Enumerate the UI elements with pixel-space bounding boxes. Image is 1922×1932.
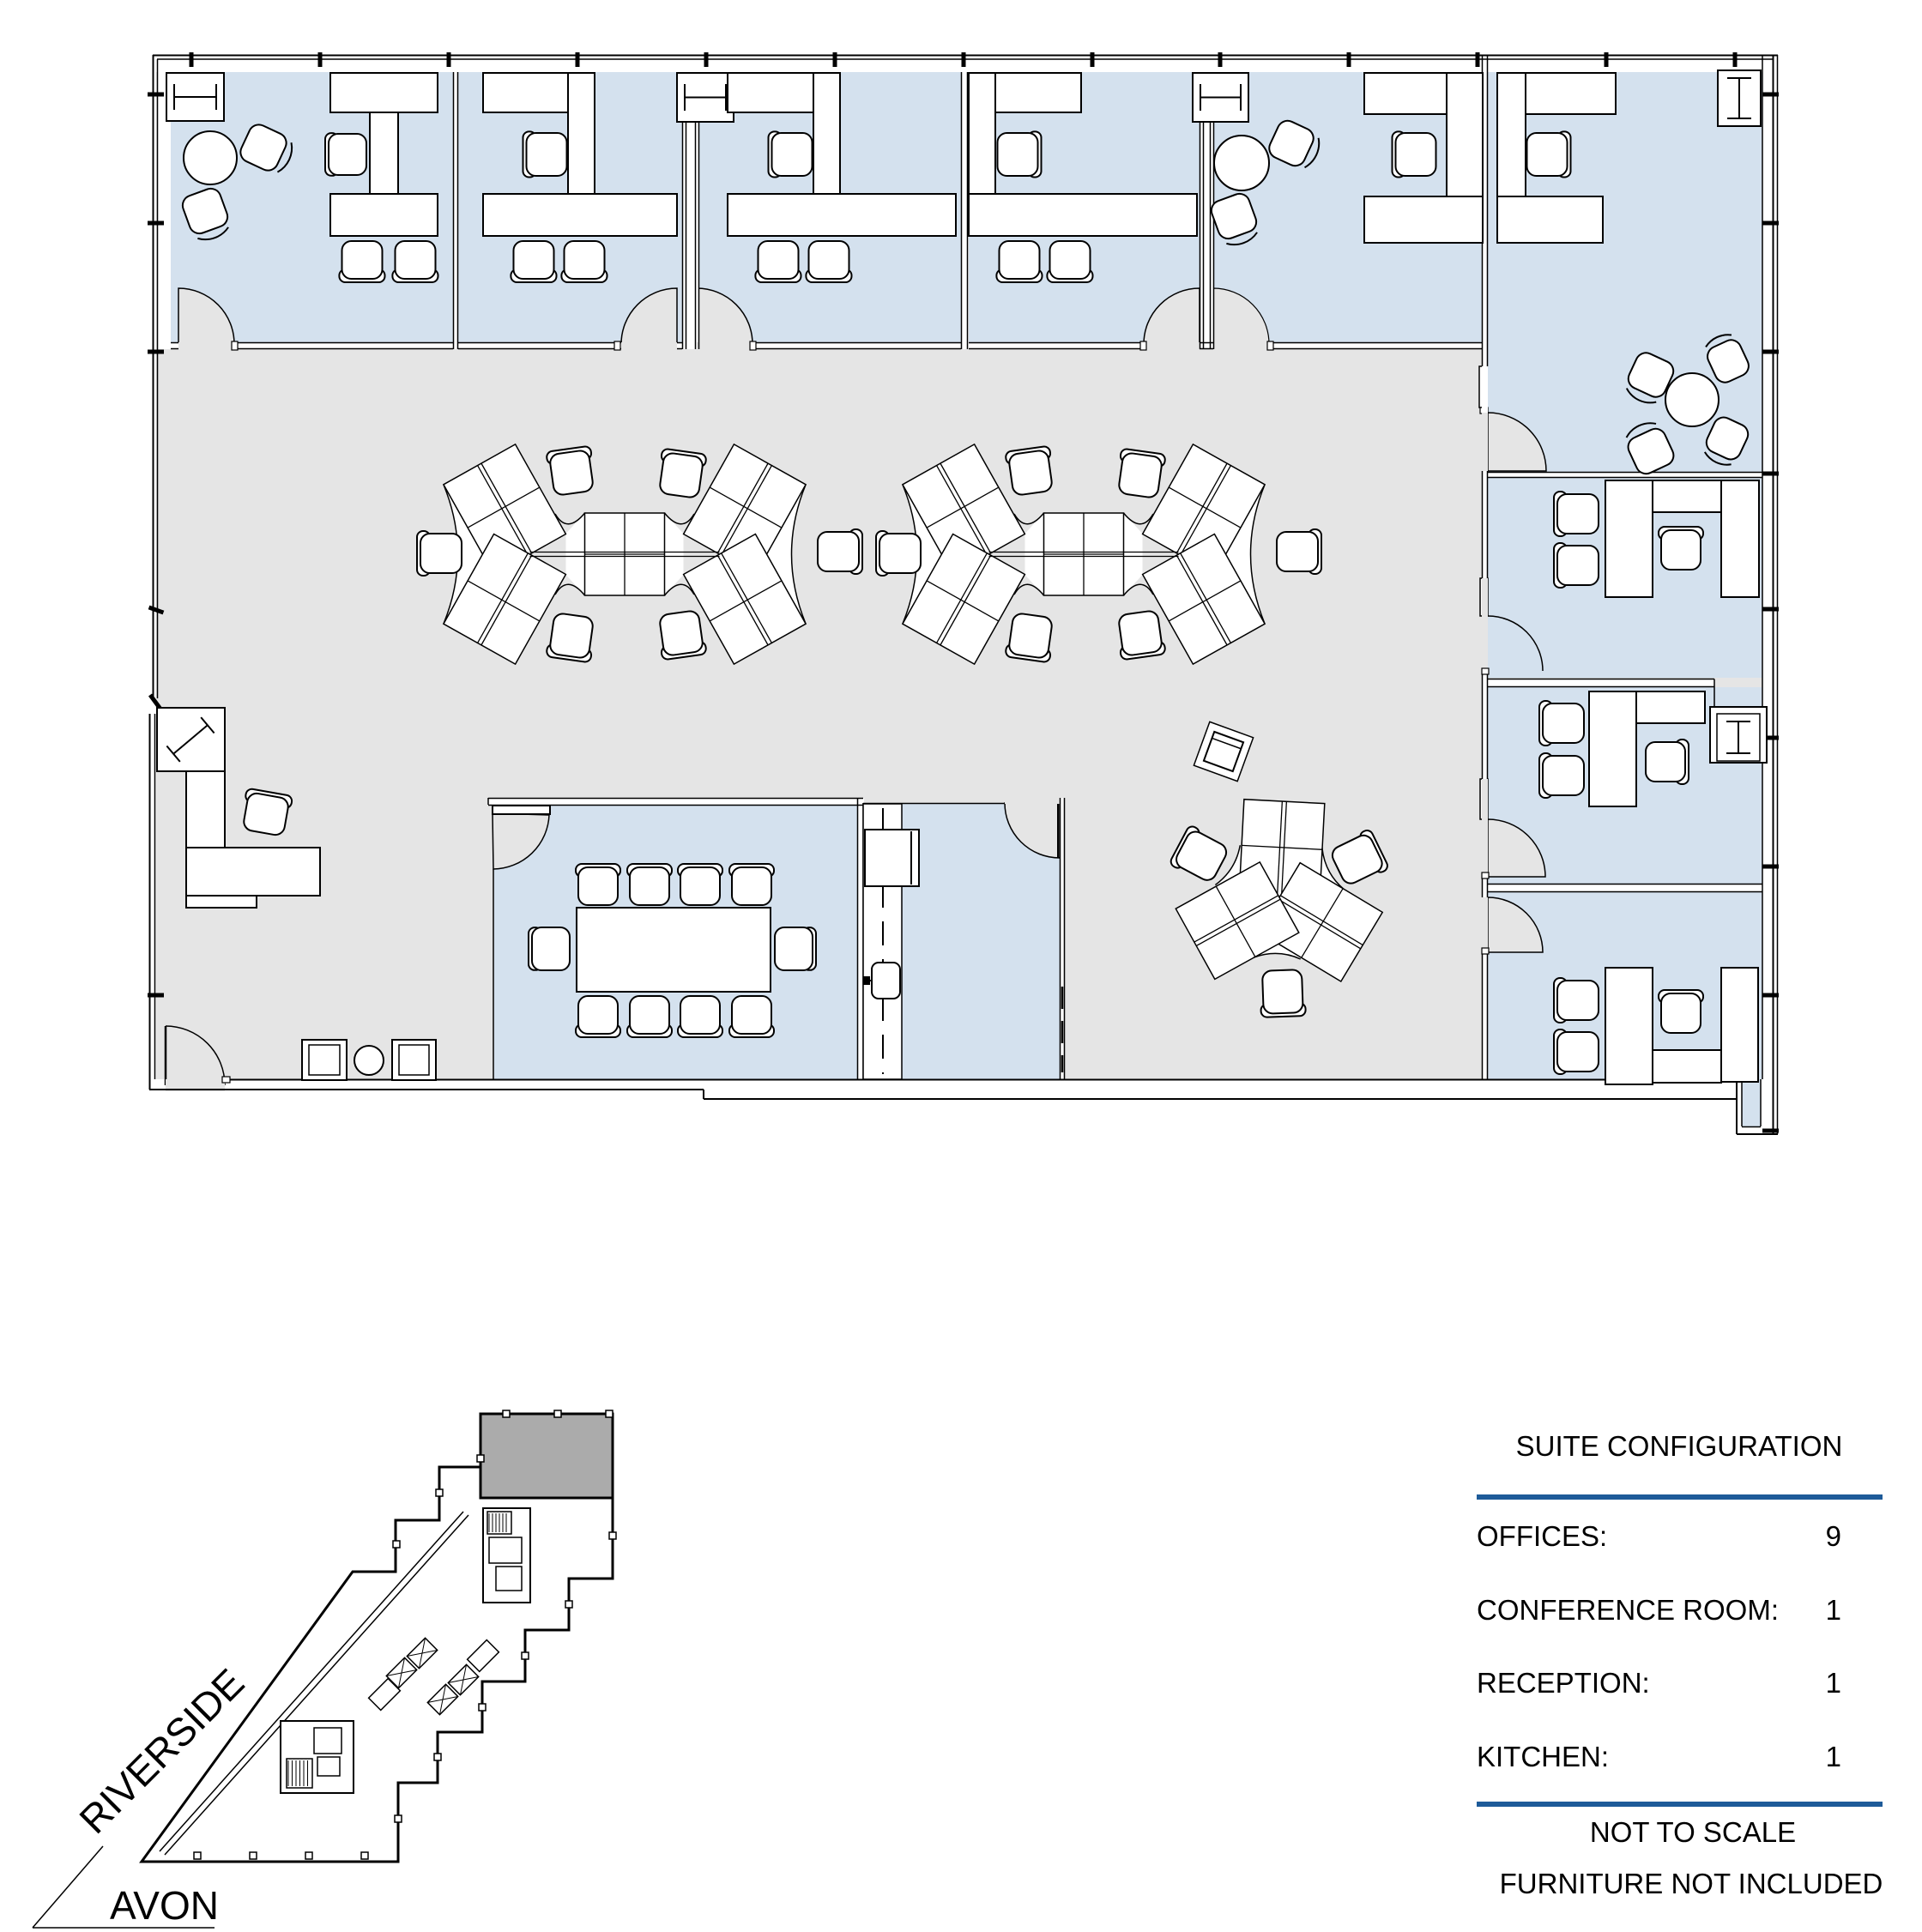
svg-text:AVON: AVON — [110, 1883, 219, 1928]
svg-text:KITCHEN:: KITCHEN: — [1477, 1741, 1609, 1772]
svg-text:NOT TO SCALE: NOT TO SCALE — [1590, 1816, 1796, 1848]
svg-text:RECEPTION:: RECEPTION: — [1477, 1667, 1650, 1699]
svg-text:9: 9 — [1826, 1520, 1841, 1552]
svg-text:1: 1 — [1826, 1741, 1841, 1772]
svg-text:1: 1 — [1826, 1594, 1841, 1626]
svg-text:1: 1 — [1826, 1667, 1841, 1699]
svg-text:SUITE CONFIGURATION: SUITE CONFIGURATION — [1516, 1430, 1843, 1462]
svg-text:FURNITURE NOT INCLUDED: FURNITURE NOT INCLUDED — [1500, 1868, 1883, 1899]
svg-text:CONFERENCE ROOM:: CONFERENCE ROOM: — [1477, 1594, 1779, 1626]
svg-text:OFFICES:: OFFICES: — [1477, 1520, 1607, 1552]
